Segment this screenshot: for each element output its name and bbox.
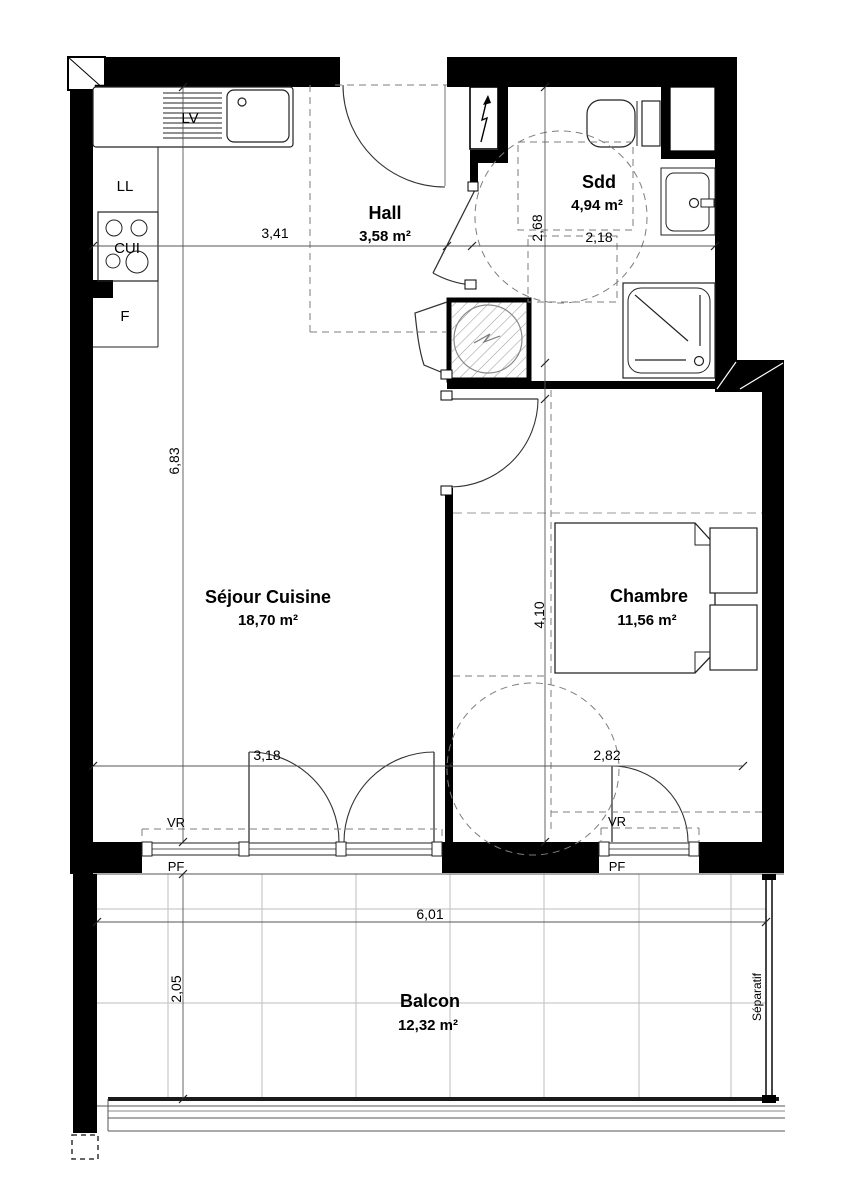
chambre-balcony-door: [612, 766, 688, 842]
roller-shutter-label-sejour: VR: [167, 815, 185, 830]
floor-plan-page: Hall 3,58 m² Sdd 4,94 m² Séjour Cuisine …: [0, 0, 863, 1200]
washbasin: [661, 168, 715, 235]
hob-label: CUI: [114, 240, 140, 257]
room-area-sdd: 4,94 m²: [571, 197, 623, 214]
roller-shutter-label-chambre: VR: [608, 814, 626, 829]
hall-pivot-door: [415, 302, 448, 375]
room-label-balcon: Balcon: [400, 991, 460, 1011]
sdd-door: [433, 190, 475, 285]
french-window-label-sejour: PF: [168, 859, 185, 874]
dim-sdd-width: 2,18: [585, 229, 612, 245]
room-label-sdd: Sdd: [582, 172, 616, 192]
dim-chambre-depth: 4,10: [531, 601, 547, 628]
dim-balcon-depth: 2,05: [168, 975, 184, 1002]
entrance-door: [343, 85, 445, 187]
balcony-railing: [97, 1099, 785, 1131]
niche: [670, 87, 715, 151]
fridge-label: F: [120, 308, 129, 325]
electrical-panel: [470, 87, 498, 149]
room-area-balcon: 12,32 m²: [398, 1017, 458, 1034]
room-label-sejour: Séjour Cuisine: [205, 587, 331, 607]
dishwasher-label: LV: [181, 110, 198, 127]
floor-plan-svg: Hall 3,58 m² Sdd 4,94 m² Séjour Cuisine …: [0, 0, 863, 1200]
dim-sejour-depth: 6,83: [166, 447, 182, 474]
separator-panel: [762, 874, 776, 1103]
room-label-hall: Hall: [368, 203, 401, 223]
toilet: [587, 100, 660, 147]
technical-duct: [449, 300, 529, 380]
chambre-french-window: [599, 842, 699, 856]
separator-label: Séparatif: [750, 972, 764, 1021]
dim-chambre-width: 2,82: [593, 747, 620, 763]
turning-circle: [447, 683, 619, 855]
room-label-chambre: Chambre: [610, 586, 688, 606]
bed-pillow: [710, 605, 757, 670]
room-area-chambre: 11,56 m²: [617, 612, 676, 629]
dim-sejour-bottom: 3,18: [253, 747, 280, 763]
shower: [623, 283, 715, 378]
french-window-label-chambre: PF: [609, 859, 626, 874]
room-area-sejour: 18,70 m²: [238, 612, 298, 629]
dim-balcon-width: 6,01: [416, 906, 443, 922]
bed-pillow: [710, 528, 757, 593]
washing-machine-label: LL: [117, 178, 134, 195]
sejour-french-window: [142, 842, 442, 856]
kitchen-sink: [227, 90, 289, 142]
dim-sdd-depth: 2,68: [529, 214, 545, 241]
dim-sejour-width: 3,41: [261, 225, 288, 241]
balcony-column-outline: [72, 1135, 98, 1159]
room-area-hall: 3,58 m²: [359, 228, 411, 245]
chambre-door: [450, 399, 538, 487]
